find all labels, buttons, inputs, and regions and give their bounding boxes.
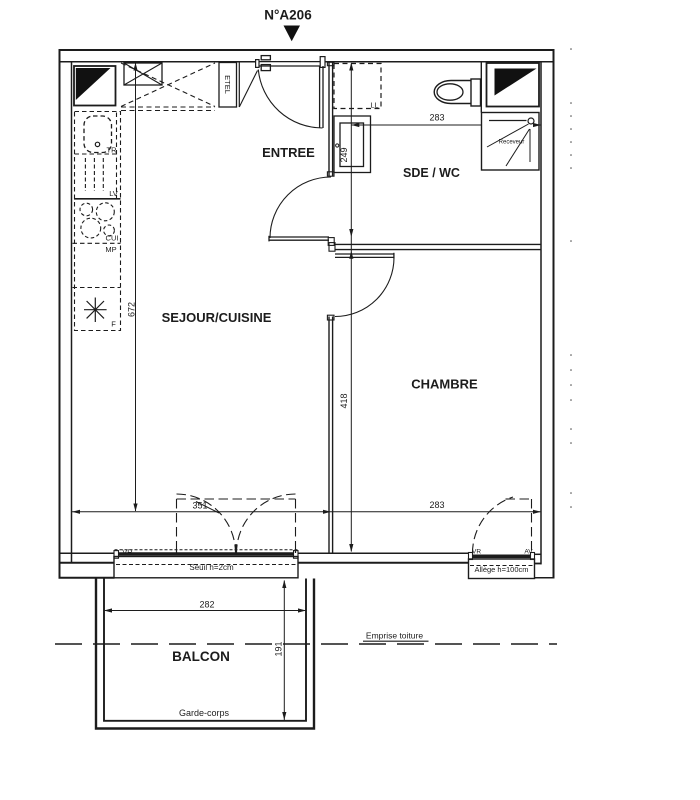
svg-text:AV: AV xyxy=(524,549,533,556)
svg-text:351: 351 xyxy=(192,501,207,511)
svg-text:SEJOUR/CUISINE: SEJOUR/CUISINE xyxy=(162,310,272,325)
svg-text:Allège h=100cm: Allège h=100cm xyxy=(475,565,529,574)
svg-text:MP: MP xyxy=(105,245,116,254)
svg-text:F: F xyxy=(111,320,116,329)
svg-text:Emprise toiture: Emprise toiture xyxy=(366,631,423,641)
svg-text:191: 191 xyxy=(274,641,284,656)
svg-text:BALCON: BALCON xyxy=(172,649,230,664)
svg-text:418: 418 xyxy=(339,393,349,408)
svg-text:249: 249 xyxy=(339,147,349,162)
svg-text:VR: VR xyxy=(472,549,481,556)
svg-text:ENTREE: ENTREE xyxy=(262,145,315,160)
svg-text:283: 283 xyxy=(429,500,444,510)
svg-text:Receveur: Receveur xyxy=(499,140,525,146)
svg-text:CHAMBRE: CHAMBRE xyxy=(411,377,478,392)
svg-text:N°A206: N°A206 xyxy=(264,8,312,23)
svg-text:TR: TR xyxy=(107,146,118,155)
svg-text:SDE / WC: SDE / WC xyxy=(403,166,460,180)
svg-text:ETEL: ETEL xyxy=(223,75,232,94)
svg-text:Seuil h=2cm: Seuil h=2cm xyxy=(189,563,234,572)
svg-text:283: 283 xyxy=(429,113,444,123)
svg-text:Garde-corps: Garde-corps xyxy=(179,708,230,718)
svg-text:CUI: CUI xyxy=(106,233,119,242)
svg-text:282: 282 xyxy=(199,600,214,610)
svg-text:672: 672 xyxy=(127,302,137,317)
svg-text:VR: VR xyxy=(122,548,133,557)
svg-text:LV: LV xyxy=(109,189,118,198)
svg-text:LL: LL xyxy=(370,101,378,110)
